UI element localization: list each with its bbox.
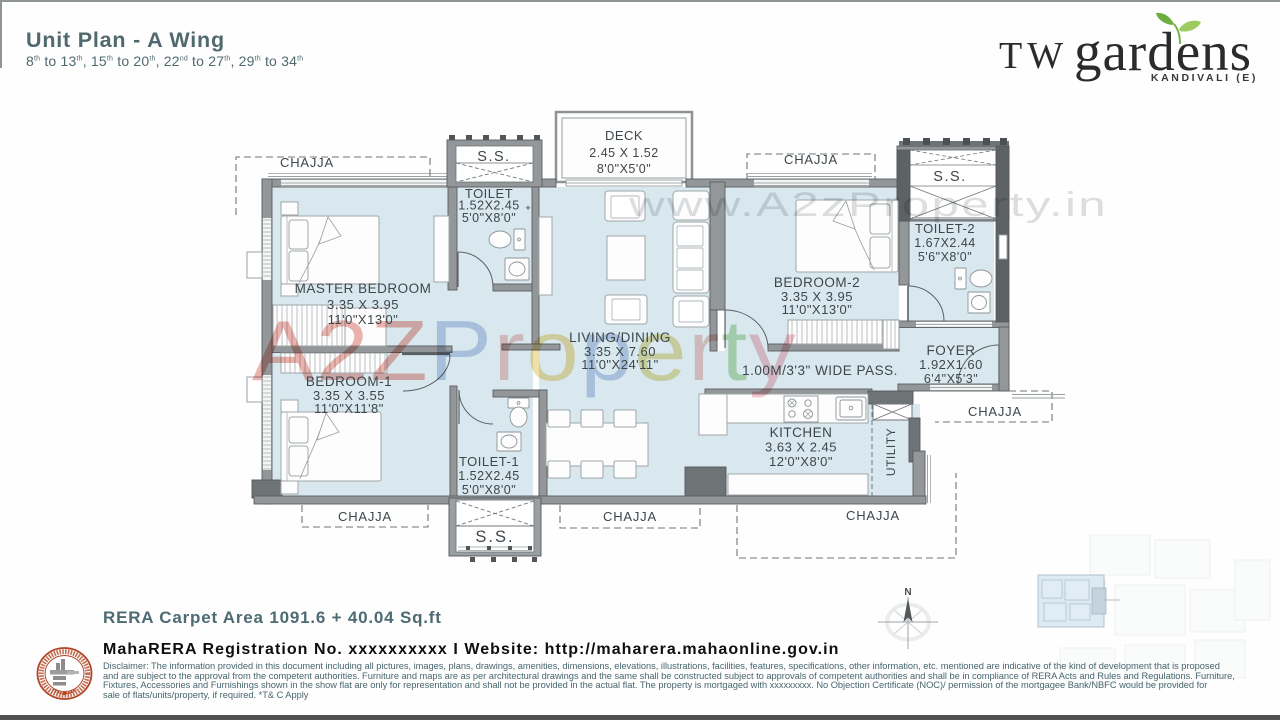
svg-text:3.35 X 3.95: 3.35 X 3.95 (327, 297, 399, 312)
svg-text:3.63 X 2.45: 3.63 X 2.45 (765, 440, 837, 455)
svg-text:1.00M/3'3" WIDE PASS.: 1.00M/3'3" WIDE PASS. (742, 363, 898, 378)
svg-text:CHAJJA: CHAJJA (280, 155, 334, 170)
svg-text:5'0"X8'0": 5'0"X8'0" (462, 483, 516, 497)
svg-text:CHAJJA: CHAJJA (338, 509, 392, 524)
svg-text:CHAJJA: CHAJJA (784, 152, 838, 167)
svg-text:1.67X2.44: 1.67X2.44 (914, 236, 976, 250)
svg-text:CHAJJA: CHAJJA (846, 508, 900, 523)
svg-text:5'0"X8'0": 5'0"X8'0" (462, 211, 516, 225)
svg-text:www.A2zProperty.in: www.A2zProperty.in (628, 185, 1108, 223)
svg-text:TOILET-2: TOILET-2 (915, 221, 975, 236)
svg-text:MASTER BEDROOM: MASTER BEDROOM (295, 281, 432, 296)
svg-text:KITCHEN: KITCHEN (770, 425, 833, 440)
svg-text:12'0"X8'0": 12'0"X8'0" (769, 454, 833, 469)
svg-text:LIVING/DINING: LIVING/DINING (569, 330, 671, 345)
svg-text:2.45 X 1.52: 2.45 X 1.52 (589, 146, 658, 160)
svg-text:11'0"X13'0": 11'0"X13'0" (328, 312, 399, 327)
svg-text:FOYER: FOYER (926, 343, 975, 358)
svg-text:S.S.: S.S. (477, 149, 510, 165)
svg-text:TOILET-1: TOILET-1 (459, 454, 519, 469)
svg-text:8'0"X5'0": 8'0"X5'0" (597, 162, 651, 176)
svg-text:5'6"X8'0": 5'6"X8'0" (918, 250, 972, 264)
svg-text:1.92X1.60: 1.92X1.60 (919, 357, 983, 372)
svg-text:6'4"X5'3": 6'4"X5'3" (924, 372, 978, 386)
svg-text:✦: ✦ (524, 203, 532, 213)
svg-text:CHAJJA: CHAJJA (603, 509, 657, 524)
svg-text:1.52X2.45: 1.52X2.45 (458, 469, 520, 483)
svg-text:N: N (904, 587, 911, 598)
svg-text:BEDROOM-1: BEDROOM-1 (306, 374, 392, 389)
svg-text:S.S.: S.S. (475, 528, 514, 546)
svg-text:CHAJJA: CHAJJA (968, 404, 1022, 419)
svg-text:DECK: DECK (605, 128, 643, 143)
svg-text:11'0"X13'0": 11'0"X13'0" (782, 302, 853, 317)
svg-text:UTILITY: UTILITY (884, 428, 898, 476)
svg-text:11'0"X11'8": 11'0"X11'8" (314, 401, 384, 416)
svg-text:11'0"X24'11": 11'0"X24'11" (581, 357, 659, 372)
svg-text:S.S.: S.S. (933, 169, 966, 185)
svg-text:BEDROOM-2: BEDROOM-2 (774, 275, 860, 290)
